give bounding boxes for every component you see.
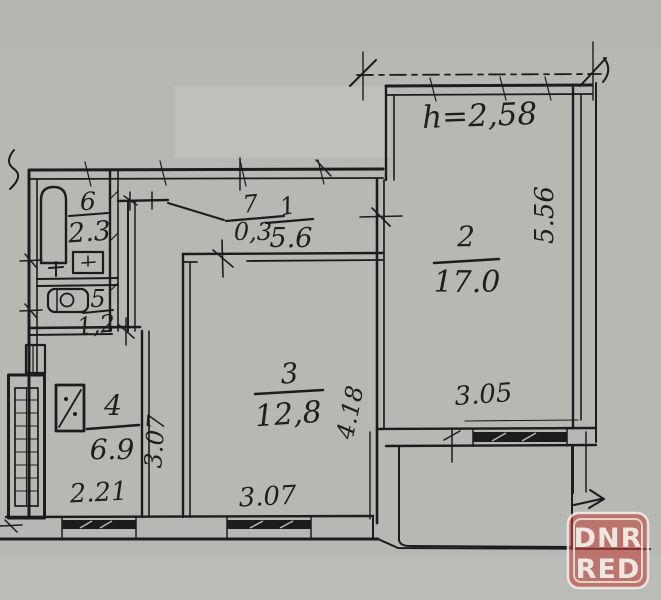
dim-kitchen-width: 2.21: [68, 477, 128, 510]
room1-area: 5.6: [270, 223, 313, 254]
wall-segment: [30, 169, 383, 170]
wall-segment: [386, 445, 596, 446]
room2-area: 17.0: [434, 265, 501, 300]
dashed-line: [357, 74, 601, 75]
wall-segment: [377, 428, 596, 429]
watermark-line2: RED: [576, 554, 641, 585]
room6-area: 2.3: [66, 216, 112, 250]
room3-area: 12,8: [254, 395, 323, 435]
dim-room3-width: 3.07: [238, 480, 298, 513]
room4-number: 4: [103, 389, 122, 422]
wall-segment: [30, 178, 383, 179]
dim-kitchen-depth: 3.07: [139, 413, 171, 469]
floor-plan-scan: 6 2.3 5 1,2 7 0,3 1 5.6 h=2,58 2 17.0 3 …: [0, 0, 661, 600]
stove-burner: [73, 412, 77, 416]
paper-light-patch: [175, 86, 390, 158]
window-glass-band: [62, 520, 136, 529]
paper-shade-strip: [0, 0, 661, 50]
room3-number: 3: [279, 356, 299, 390]
watermark-badge: DNR RED: [568, 513, 648, 588]
window-glass-band: [473, 432, 567, 442]
wall-segment: [386, 85, 592, 86]
room6-number: 6: [80, 187, 96, 216]
wall-segment: [386, 94, 592, 95]
ceiling-height-label: h=2,58: [422, 96, 538, 136]
floor-plan-svg: 6 2.3 5 1,2 7 0,3 1 5.6 h=2,58 2 17.0 3 …: [0, 0, 661, 600]
room2-number: 2: [456, 220, 475, 253]
wall-segment: [6, 516, 373, 517]
stove-burner: [64, 397, 68, 401]
room4-area: 6.9: [90, 433, 135, 466]
watermark-line1: DNR: [574, 523, 643, 554]
dim-room2-width: 3.05: [454, 378, 514, 412]
room5-area: 1,2: [76, 309, 117, 341]
dim-room2-depth: 5.56: [530, 186, 560, 244]
wall-segment: [118, 200, 168, 201]
paper-light-strip: [0, 556, 661, 600]
window-glass-band: [227, 520, 311, 529]
room5-number: 5: [90, 285, 105, 313]
